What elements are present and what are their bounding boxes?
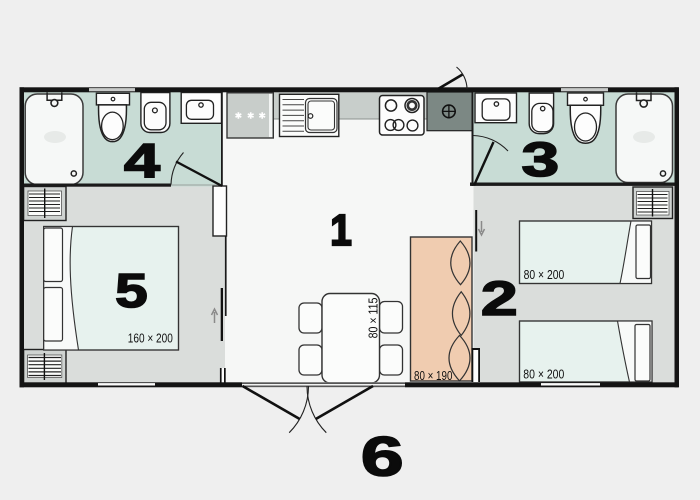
svg-text:5: 5	[115, 265, 148, 318]
svg-text:4: 4	[124, 134, 160, 188]
svg-text:80 × 115: 80 × 115	[366, 298, 380, 339]
svg-text:3: 3	[521, 133, 559, 186]
svg-text:80 × 200: 80 × 200	[523, 368, 564, 382]
svg-text:80 × 190: 80 × 190	[414, 369, 452, 383]
svg-text:1: 1	[330, 204, 352, 254]
svg-text:160 × 200: 160 × 200	[128, 332, 173, 346]
svg-text:6: 6	[361, 426, 404, 488]
svg-text:80 × 200: 80 × 200	[524, 268, 565, 282]
svg-text:2: 2	[481, 273, 518, 326]
